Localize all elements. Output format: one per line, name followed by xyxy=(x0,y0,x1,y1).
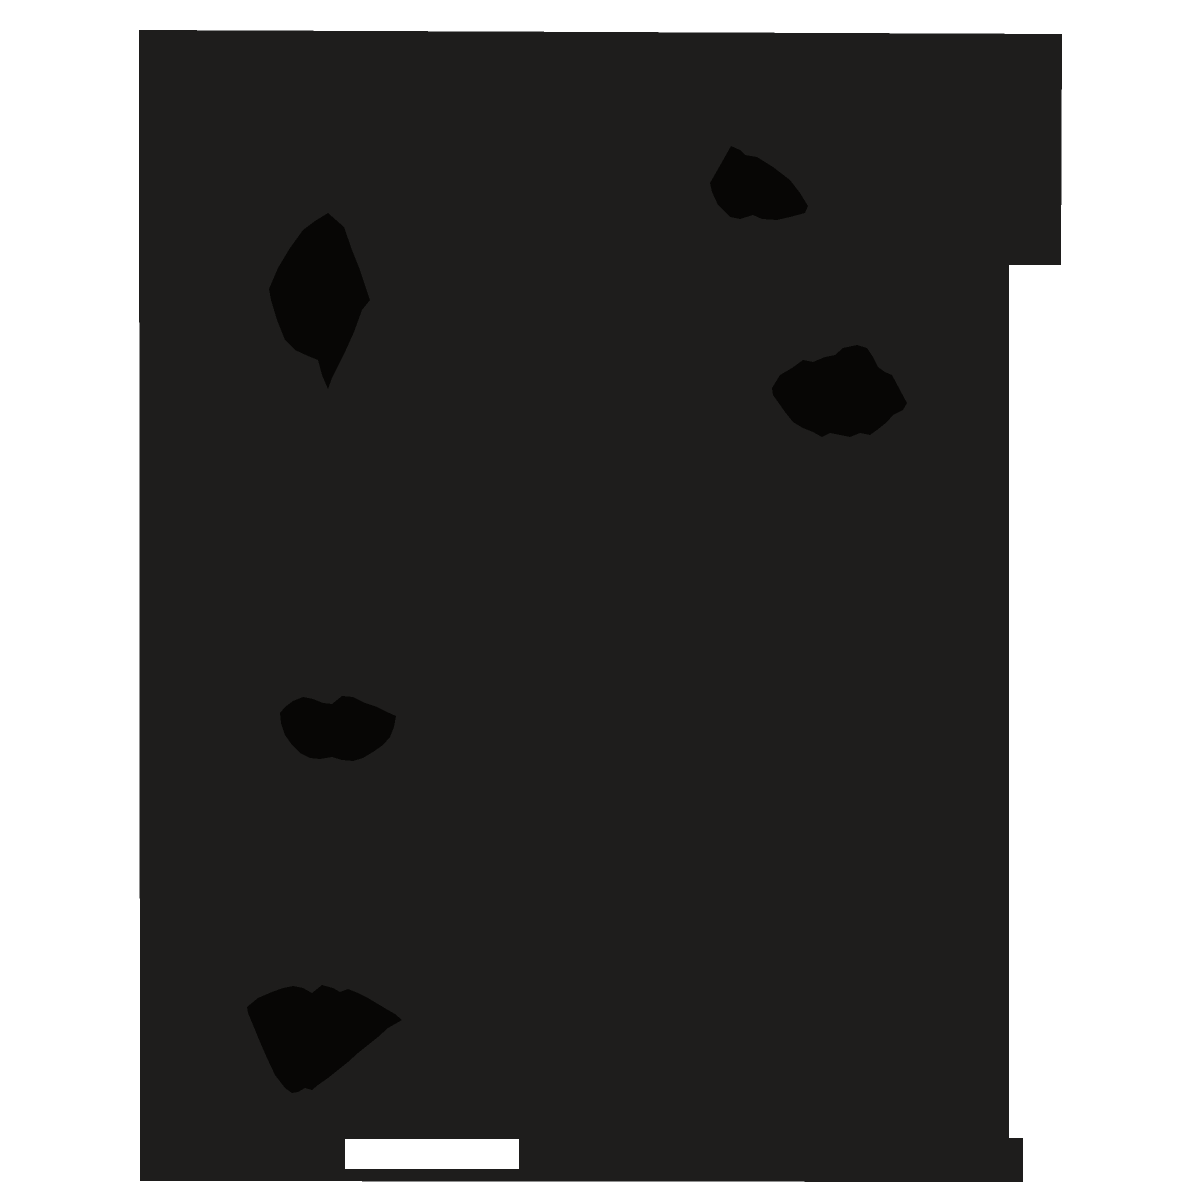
scanned-image-container xyxy=(0,0,1200,1200)
page-background: { "scene": { "description": "Scan of an … xyxy=(0,0,1200,1200)
scanned-dark-page-image xyxy=(0,0,1200,1200)
white-cutout-rect xyxy=(345,1139,519,1169)
